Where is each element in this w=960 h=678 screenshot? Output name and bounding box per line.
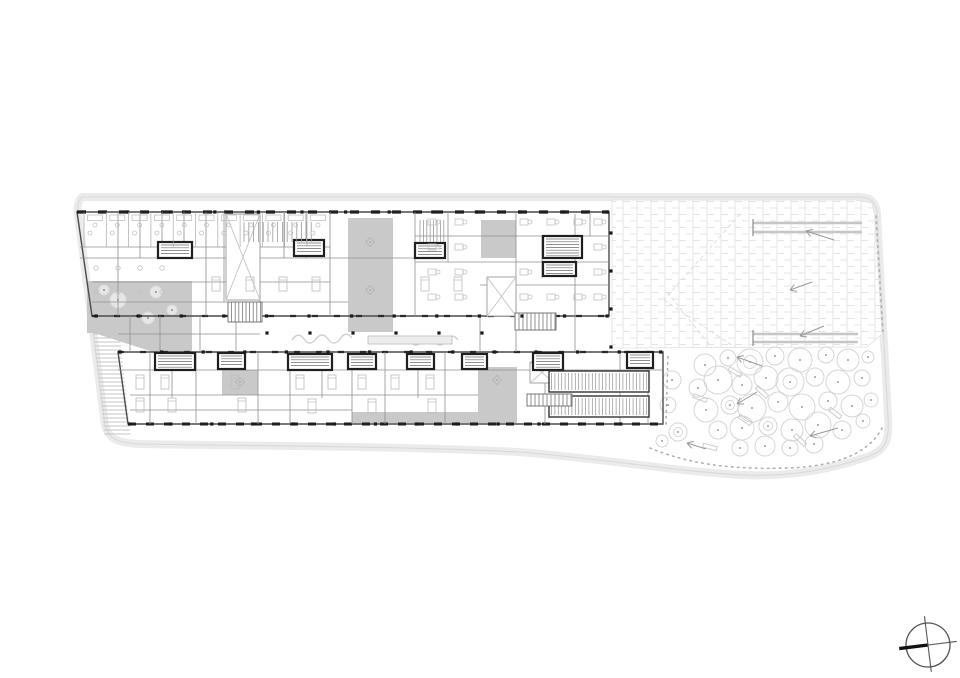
tree-garden bbox=[650, 347, 884, 468]
north-compass-icon bbox=[896, 613, 960, 676]
brick-plaza bbox=[612, 200, 883, 348]
plan-sheet bbox=[0, 0, 960, 678]
floor-plan-drawing bbox=[0, 0, 960, 678]
